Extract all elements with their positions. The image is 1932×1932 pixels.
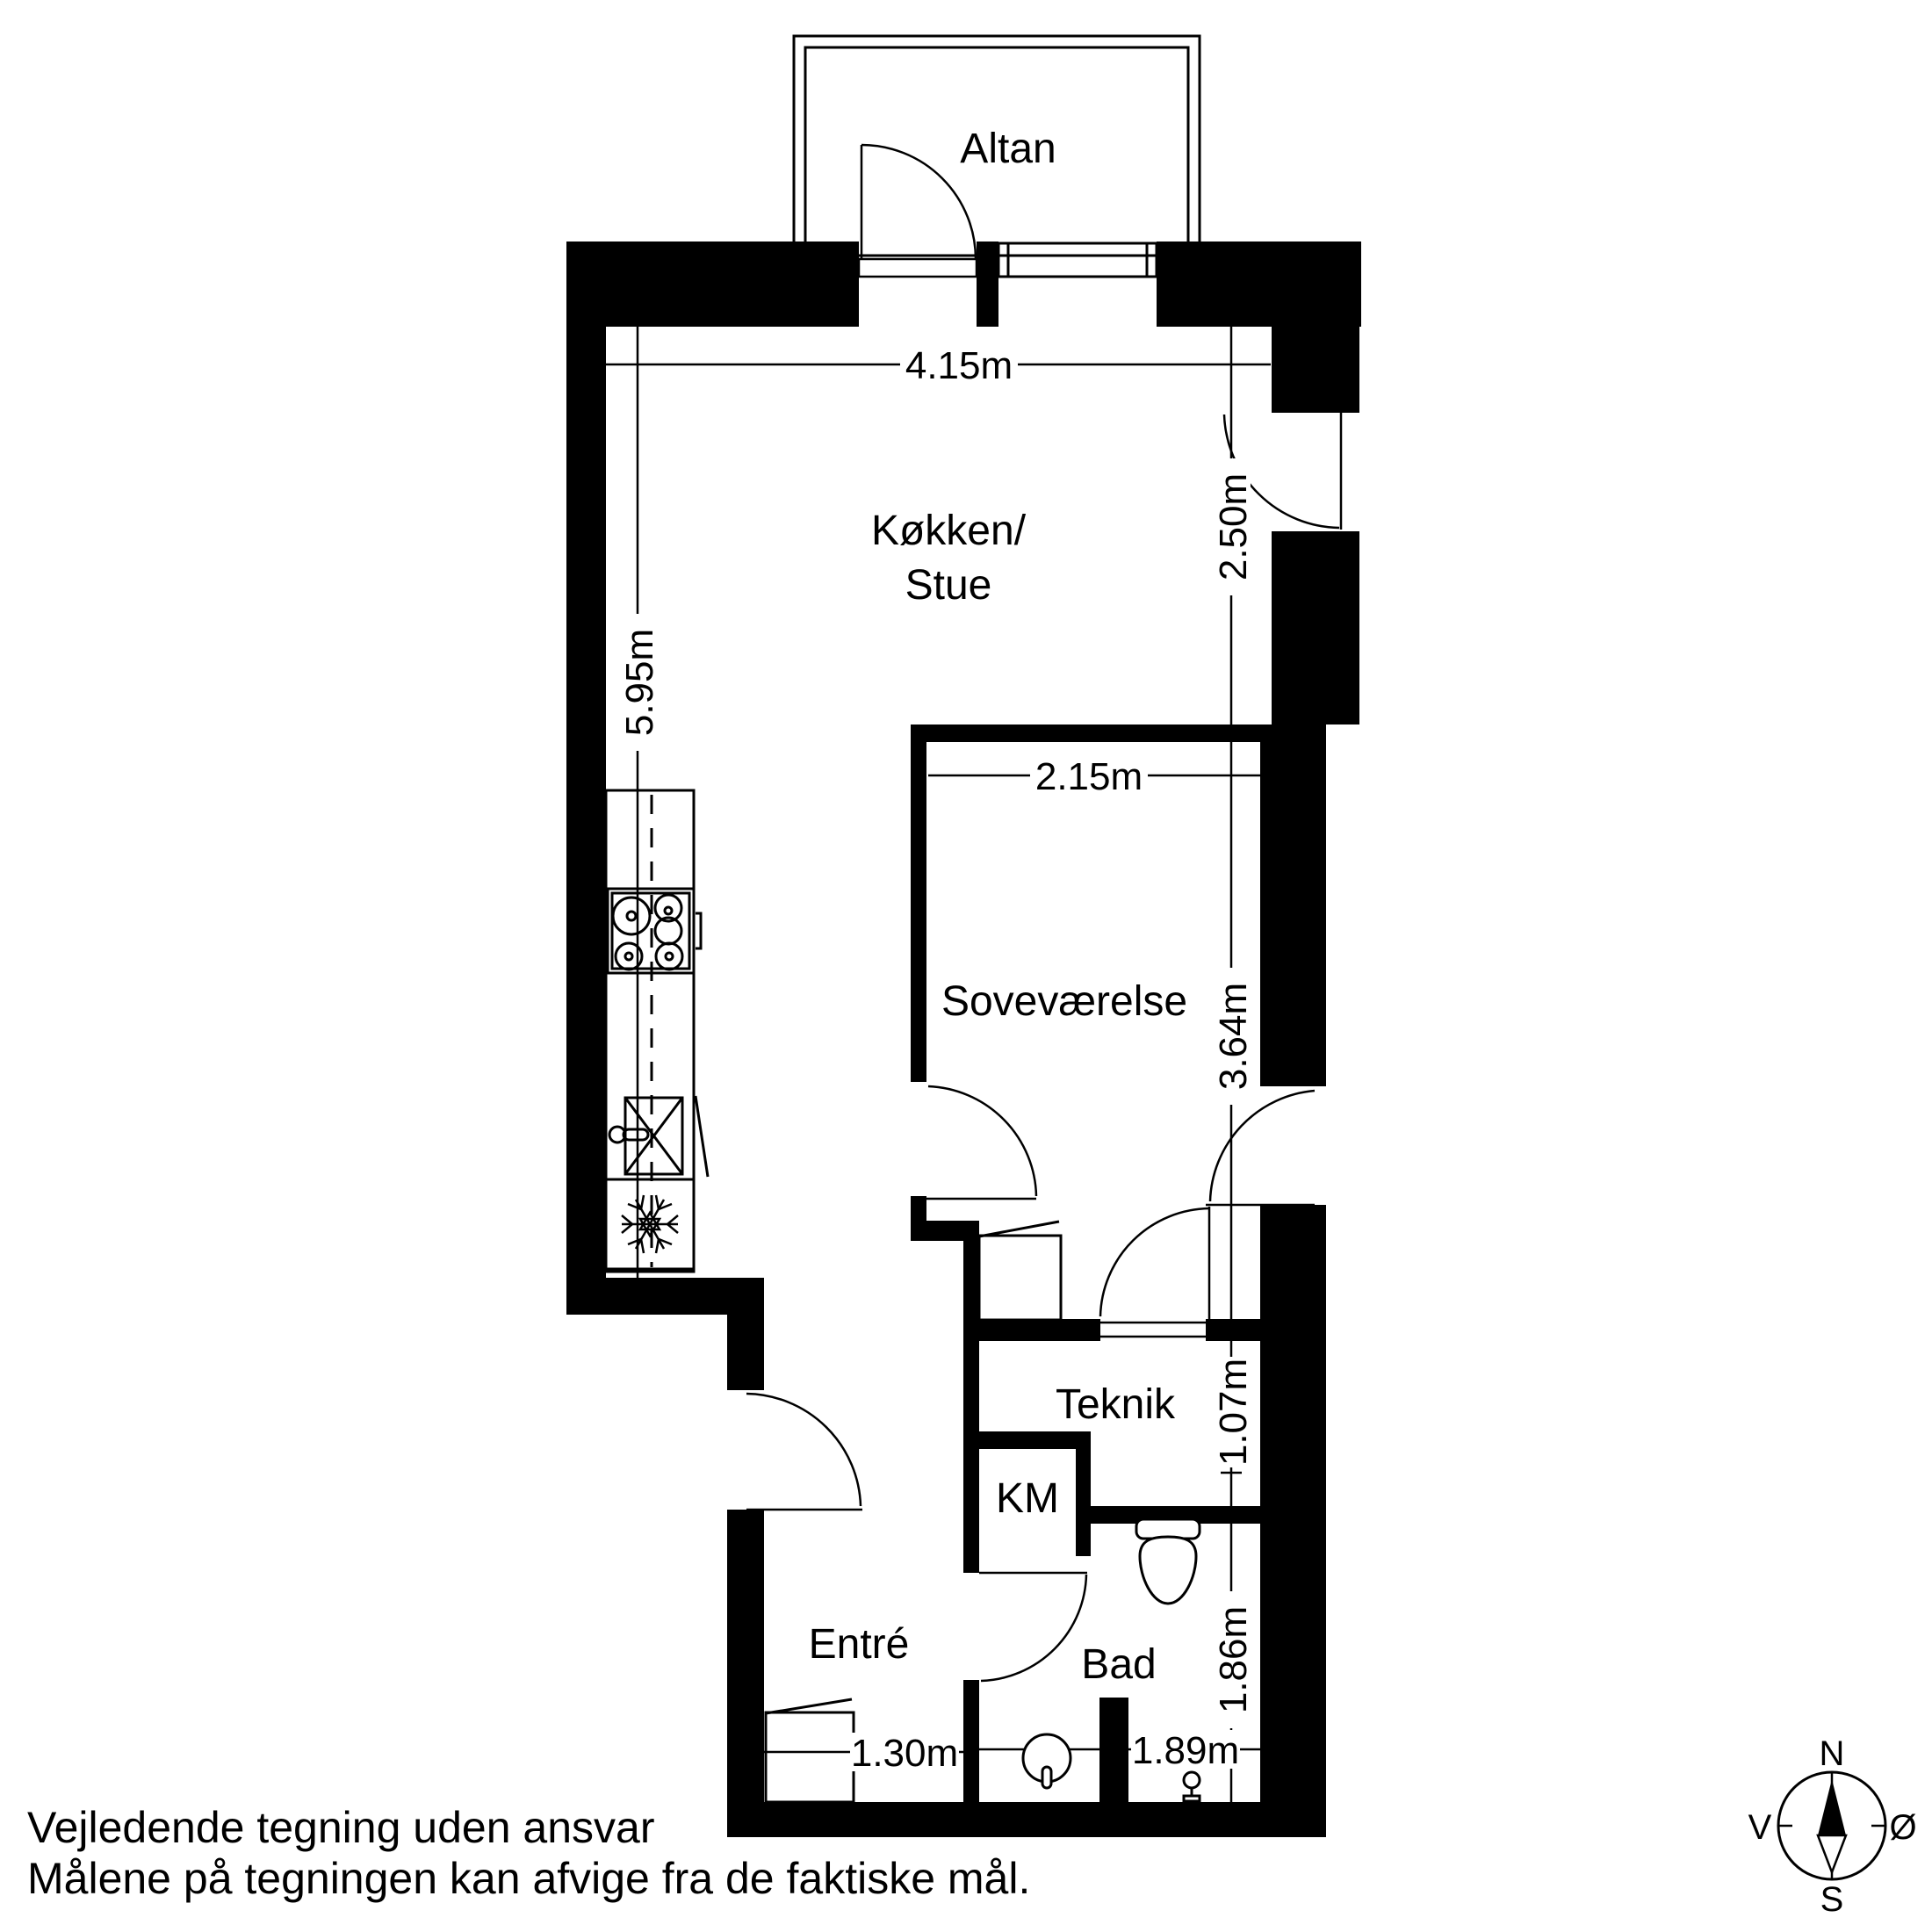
snowflake-icon	[622, 1195, 678, 1253]
room-label-km: KM	[996, 1475, 1059, 1522]
room-label-entre: Entré	[809, 1621, 910, 1668]
compass-needle-south	[1818, 1835, 1846, 1872]
compass-label-north: N	[1820, 1734, 1845, 1773]
floor-plan-drawing: 4.15m 5.95m 2.50m 2.15m 3.64m 1.07m 1.86…	[0, 0, 1932, 1932]
bedroom-east-door	[1206, 1091, 1315, 1205]
washbasin-icon	[1023, 1734, 1071, 1788]
fridge-icon	[606, 1179, 694, 1269]
dim-top-width: 4.15m	[905, 344, 1013, 387]
room-label-bad: Bad	[1081, 1641, 1156, 1688]
compass-rose: N V Ø S	[1748, 1734, 1917, 1919]
disclaimer-line2: Målene på tegningen kan afvige fra de fa…	[27, 1854, 1030, 1903]
room-label-kitchen-line2: Stue	[905, 562, 992, 609]
room-label-altan: Altan	[960, 126, 1056, 172]
dim-bedroom-width: 2.15m	[1035, 755, 1143, 798]
dim-right-top: 2.50m	[1212, 473, 1255, 580]
living-room-window	[998, 243, 1157, 277]
cooktop-icon	[608, 889, 701, 973]
dim-bedroom-depth: 3.64m	[1212, 983, 1255, 1090]
room-label-kitchen-line1: Køkken/	[871, 508, 1027, 554]
compass-label-east: Ø	[1889, 1808, 1916, 1847]
entre-closet	[766, 1699, 854, 1802]
toilet-icon	[1136, 1519, 1200, 1604]
dim-bad-width: 1.89m	[1132, 1729, 1239, 1772]
kitchen-counter	[606, 790, 694, 1272]
compass-needle-north	[1818, 1779, 1846, 1835]
bedroom-closet	[979, 1222, 1061, 1320]
disclaimer-line1: Vejledende tegning uden ansvar	[27, 1803, 654, 1852]
dim-teknik-depth: 1.07m	[1212, 1359, 1255, 1466]
teknik-door	[1100, 1207, 1209, 1337]
dim-left-height: 5.95m	[618, 629, 661, 736]
shower-drain-icon	[1184, 1772, 1200, 1801]
bedroom-door	[926, 1086, 1036, 1199]
room-label-teknik: Teknik	[1056, 1381, 1176, 1428]
dim-entre-width: 1.30m	[851, 1732, 958, 1775]
bathroom-door	[979, 1573, 1087, 1681]
floor-plan-page: 4.15m 5.95m 2.50m 2.15m 3.64m 1.07m 1.86…	[0, 0, 1932, 1932]
compass-label-south: S	[1820, 1880, 1844, 1919]
dim-bad-depth: 1.86m	[1212, 1606, 1255, 1713]
room-label-bedroom: Soveværelse	[941, 978, 1187, 1025]
compass-label-west: V	[1748, 1808, 1772, 1847]
kitchen-fixtures	[606, 790, 708, 1272]
entrance-door	[746, 1394, 862, 1510]
